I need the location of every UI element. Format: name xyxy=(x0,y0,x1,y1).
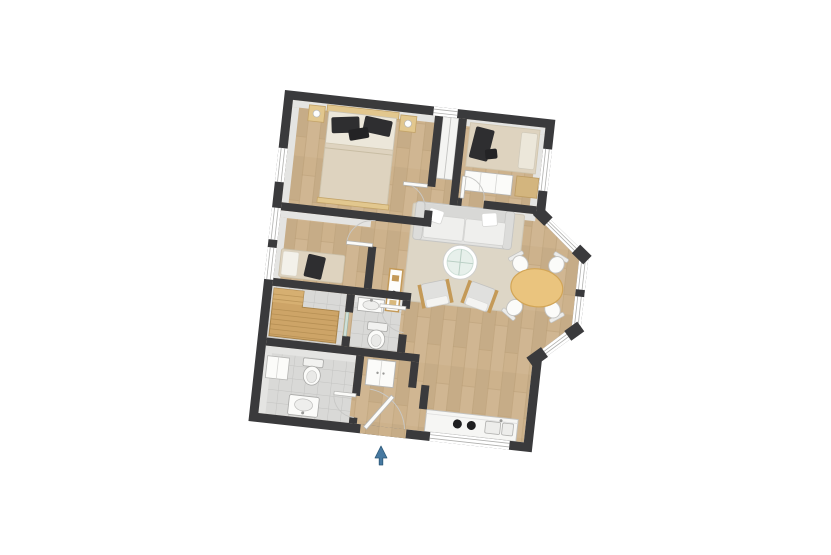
side-unit xyxy=(515,176,539,198)
floor-plan-page: Top-down 3D floor plan rendering of a tw… xyxy=(0,0,831,555)
throw-pillow xyxy=(482,213,498,227)
bedroom-2-furniture xyxy=(463,123,544,199)
single-bed xyxy=(466,123,540,174)
vanity-sink xyxy=(287,394,319,417)
double-bed xyxy=(317,105,399,210)
entry-closet xyxy=(365,359,396,388)
floor-plan xyxy=(0,0,831,555)
